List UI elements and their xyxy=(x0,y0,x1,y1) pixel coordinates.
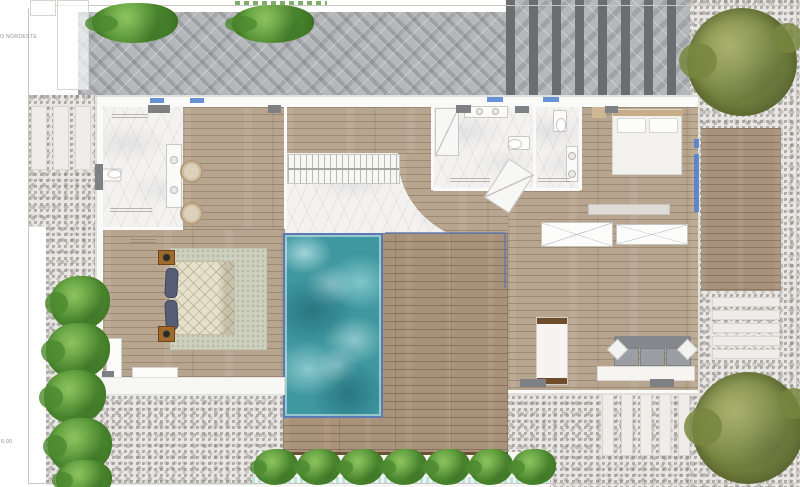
nightstand xyxy=(158,326,175,342)
wall xyxy=(103,227,183,230)
headboard xyxy=(613,110,683,116)
sink-basin xyxy=(568,170,576,178)
hallway-floor xyxy=(285,107,433,153)
bed-quilted xyxy=(175,261,235,335)
boundary-line-left xyxy=(28,8,29,484)
window xyxy=(487,97,503,102)
round-chair xyxy=(180,160,203,183)
striped-driveway xyxy=(506,0,690,95)
stepping-stone xyxy=(659,392,671,456)
pillow xyxy=(617,118,646,133)
room-label xyxy=(130,239,156,244)
walkway xyxy=(95,377,285,395)
closet-unit xyxy=(616,224,688,245)
wall-block xyxy=(95,164,103,190)
vanity xyxy=(166,144,182,208)
nightstand xyxy=(158,250,175,265)
wall-block xyxy=(520,379,546,387)
lintel-block xyxy=(605,106,618,113)
window xyxy=(150,98,164,103)
lintel-block xyxy=(268,105,281,113)
window xyxy=(694,139,699,148)
pillow xyxy=(649,118,678,133)
time-annotation: 6:00 xyxy=(1,439,12,445)
wall xyxy=(284,107,287,229)
room-label xyxy=(450,178,490,183)
sofa-base xyxy=(597,366,695,381)
lintel-block xyxy=(148,105,170,113)
shower-enclosure xyxy=(435,108,459,156)
sink-basin xyxy=(492,108,499,115)
bed-master xyxy=(612,109,682,175)
sink-basin xyxy=(476,108,483,115)
lintel-block xyxy=(515,106,529,113)
wall xyxy=(579,107,582,190)
shrub xyxy=(56,460,112,487)
wall xyxy=(431,107,434,190)
room-label xyxy=(538,178,570,183)
wind-annotation: O NORDESTE xyxy=(0,34,37,40)
stepping-stone xyxy=(602,392,614,456)
stepping-stone xyxy=(31,106,47,170)
round-chair xyxy=(180,202,203,225)
stepping-stone xyxy=(712,323,780,333)
lintel-block xyxy=(456,105,471,113)
window xyxy=(190,98,204,103)
wardrobe xyxy=(536,317,568,385)
wall-block xyxy=(650,379,674,387)
room-label xyxy=(110,208,152,214)
stepping-stone xyxy=(712,349,780,359)
stepping-stone xyxy=(712,310,780,320)
olive-tree xyxy=(692,372,800,484)
boundary-line-top xyxy=(55,5,798,6)
pillow xyxy=(164,268,179,299)
sink-basin xyxy=(170,186,178,194)
side-deck-patch xyxy=(701,128,781,291)
stepping-stone xyxy=(712,336,780,346)
dresser xyxy=(588,204,670,215)
pool-fence-line xyxy=(504,233,506,288)
sofa-cushion xyxy=(640,348,665,366)
toilet xyxy=(508,136,530,150)
window xyxy=(543,97,559,102)
closet-unit xyxy=(541,222,613,247)
stepping-stone xyxy=(640,392,652,456)
neighbor-outline xyxy=(30,0,56,16)
sink-basin xyxy=(170,156,178,164)
wall xyxy=(533,107,536,190)
stepping-stone xyxy=(712,297,780,307)
olive-tree xyxy=(687,8,797,116)
swimming-pool xyxy=(283,233,383,418)
floor-plan: O NORDESTE 6:00 xyxy=(0,0,800,487)
toilet xyxy=(553,110,567,132)
stepping-stone xyxy=(621,392,633,456)
staircase xyxy=(287,154,400,184)
stepping-stone xyxy=(75,106,91,170)
window xyxy=(694,154,699,212)
neighbor-outline xyxy=(57,0,89,90)
stepping-stone xyxy=(53,106,69,170)
pool-fence-line xyxy=(385,232,506,234)
room-label xyxy=(112,114,148,120)
door-mat xyxy=(592,107,606,118)
sink-basin xyxy=(568,152,576,160)
